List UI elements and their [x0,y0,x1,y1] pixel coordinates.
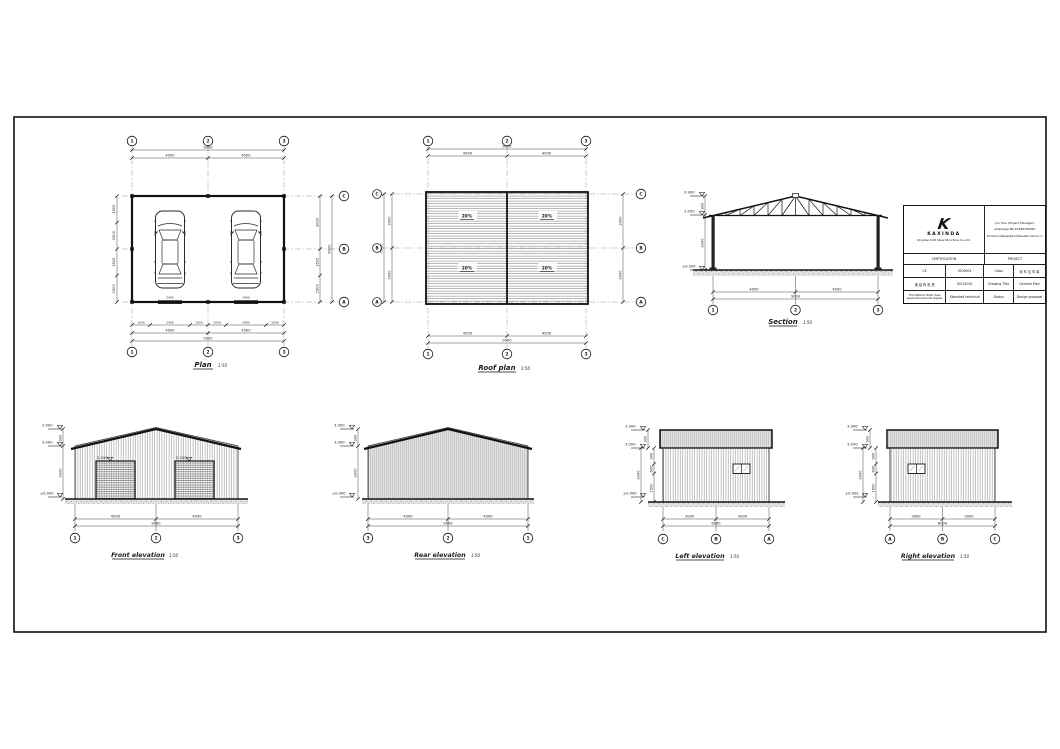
view-title: Section [768,318,797,326]
level-label: ±0.000 [682,265,696,269]
dim-label: 3000 [59,468,63,478]
plan-view: 9000 4500 4500 1500 1500 1500 1500 3000 … [112,136,349,369]
car-icon [154,211,187,288]
level-label: 3.900 [42,424,53,428]
grid-bubble: 2 [505,139,508,145]
grid-bubble: A [639,300,643,306]
front-elevation-view: 2.200 2.200 3.900 3.000 ±0.000 900 3000 … [40,424,248,559]
level-label: 3.900 [334,424,345,428]
dim-label: 4500 [749,287,759,291]
grid-bubble: 1 [426,139,429,145]
grid-bubble: 2 [505,352,508,358]
dim-label: 4500 [542,151,552,155]
level-label: ±0.000 [40,492,54,496]
view-title: Plan [194,361,211,369]
level-label: 3.000 [334,441,345,445]
roof-truss [703,194,888,219]
dim-label: 1500 [650,483,654,493]
level-label: ±0.000 [332,492,346,496]
dim-label: 2400 [242,321,250,325]
title-block-cell: Status [984,291,1014,303]
dim-label: 4500 [832,287,842,291]
title-block-cell: 钢 结 构 资 质 [904,278,946,290]
view-title: Rear elevation [414,551,466,559]
dim-label: 4500 [463,151,473,155]
sheet-drawing: 9000 4500 4500 1500 1500 1500 1500 3000 … [0,0,1060,749]
grid-bubble: C [375,192,378,198]
dim-label: 1050 [213,321,221,325]
grid-bubble: 2 [446,536,449,542]
roof-plan-view: 9000 4500 4500 6000 3000 3000 3000 3000 … [373,136,646,372]
dim-label: 3000 [316,217,320,227]
view-scale: 1:50 [803,320,812,325]
title-block-cell: Design proposal [1014,291,1045,303]
slope-label: 20% [462,214,473,220]
left-elevation-view: 3.900 3.000 ±0.000 900 3000 900 600 1500… [623,425,785,560]
ground-strip [693,270,893,276]
contact-cell: Jon Hao (Project Manager) whatsapp:86-15… [985,206,1045,253]
title-block-cell: ISO14001 [946,278,984,290]
grid-bubble: 1 [130,350,133,356]
dim-label: 1500 [872,483,876,493]
grid-bubble: 2 [794,308,797,314]
dim-label: 1500 [112,230,116,240]
dim-label: 1500 [316,283,320,293]
dim-label: 900 [354,434,358,442]
dim-label: 1500 [316,257,320,267]
grid-bubble: 1 [711,308,714,314]
company-logo: K [937,217,951,231]
grid-bubble: C [639,192,642,198]
dim-label: 1050 [271,321,279,325]
dim-label: 1050 [137,321,145,325]
dim-label: 900 [872,452,876,460]
dim-label: 3000 [911,514,921,518]
level-label: 3.000 [847,443,858,447]
dim-label: 900 [644,435,648,443]
grid-bubble: 1 [130,139,133,145]
dim-label: 4500 [111,514,121,518]
dim-label: 3000 [354,468,358,478]
dim-label: 6000 [328,244,332,254]
dim-label: 4500 [165,328,175,332]
dim-label: 4500 [403,514,413,518]
dim-label: 6000 [938,521,948,525]
grid-bubble: 3 [584,139,587,145]
title-block-cell: General Plan [1014,278,1045,290]
column [712,215,715,270]
dim-label: 4500 [241,153,251,157]
dim-label: 3000 [859,470,863,480]
level-label: 3.000 [684,210,695,214]
grid-bubble: 3 [584,352,587,358]
grid-bubble: 3 [282,350,285,356]
ground-strip [878,502,1012,507]
side-wall [663,448,769,502]
grid-bubble: C [342,194,345,200]
dim-label: 9000 [502,338,512,342]
grid-bubble: C [993,537,996,543]
column [877,215,880,270]
dim-label: 1050 [195,321,203,325]
view-title: Roof plan [478,364,515,372]
dim-label: 1500 [112,257,116,267]
title-block-cell: Standard technical [946,291,984,303]
roof-fascia-band [660,430,772,448]
dim-label: 9000 [203,336,213,340]
window [908,464,925,474]
grid-bubble: 2 [154,536,157,542]
dim-label: 900 [866,435,870,443]
car-icon [230,211,263,288]
dim-label: 3000 [619,216,623,226]
roof-fascia-band [887,430,998,448]
section-view: 3.900 3.000 ±0.000 900 3000 4500 4500 90… [682,191,893,326]
ground-strip [362,499,534,504]
level-label: 3.900 [847,425,858,429]
grid-bubble: 2 [206,350,209,356]
right-elevation-view: 3.900 3.000 ±0.000 900 3000 900 600 1500… [845,425,1012,560]
company-subtitle: Qingdao KXD Steel Structure Co.,Ltd. [917,238,971,242]
door-opening [158,300,182,304]
dim-label: 4500 [542,331,552,335]
roller-door [175,461,214,499]
level-label: 3.900 [684,191,695,195]
dim-label: 3000 [738,514,748,518]
grid-bubble: 2 [206,139,209,145]
grid-bubble: 1 [426,352,429,358]
grid-bubble: 3 [282,139,285,145]
dim-label: 600 [872,465,876,473]
door-tag: 2400 [166,296,174,300]
dim-label: 4500 [165,153,175,157]
title-block-cell: Drawing Title [984,278,1014,290]
view-scale: 1:50 [169,553,178,558]
dim-label: 3000 [701,238,705,248]
level-label: 3.900 [625,425,636,429]
dim-label: 9000 [443,521,453,525]
dim-label: 2400 [166,321,174,325]
door-level-label: 2.200 [97,456,108,460]
slope-label: 20% [542,214,553,220]
dim-label: 3000 [685,514,695,518]
roller-door [96,461,135,499]
rear-elevation-view: 3.900 3.000 ±0.000 900 3000 4500 4500 90… [332,424,534,559]
title-block-cell: CE [904,265,946,277]
dim-label: 4500 [241,328,251,332]
dim-label: 9000 [791,294,801,298]
grid-bubble: A [767,537,771,543]
title-block-cell: ISO9001 [946,265,984,277]
view-scale: 1:50 [471,553,480,558]
view-scale: 1:50 [521,366,530,371]
material-note-line: special structure life register [907,297,943,300]
door-level-label: 2.200 [176,456,187,460]
level-label: 3.000 [625,443,636,447]
level-label: 3.000 [42,441,53,445]
title-block-cell: The Material: Metal Class special struct… [904,291,946,303]
slope-label: 20% [462,266,473,272]
company-cell: K KAXINDA Qingdao KXD Steel Structure Co… [904,206,985,253]
grid-bubble: A [888,537,892,543]
dim-label: 4500 [192,514,202,518]
dim-label: 3000 [637,470,641,480]
slope-label: 20% [542,266,553,272]
ground-strip [65,499,248,504]
view-title: Left elevation [675,552,725,560]
grid-bubble: C [661,537,664,543]
plan-building-outline [132,196,284,302]
grid-bubble: 3 [366,536,369,542]
window [733,464,750,474]
level-label: ±0.000 [845,492,859,496]
grid-bubble: 1 [73,536,76,542]
rear-wall [368,428,528,500]
dim-label: 6000 [711,521,721,525]
side-wall [890,448,995,502]
certification-header: CERTIFICATION [904,254,985,264]
dim-label: 3000 [388,216,392,226]
view-title: Front elevation [111,551,165,559]
level-label: ±0.000 [623,492,637,496]
door-tag: 2400 [242,296,250,300]
dim-label: 4500 [463,331,473,335]
dim-label: 9000 [151,521,161,525]
view-scale: 1:50 [218,363,227,368]
title-block-cell: Class [984,265,1014,277]
dim-label: 1500 [112,283,116,293]
title-block-cell: 双 车 位 车 库 [1014,265,1045,277]
title-block: K KAXINDA Qingdao KXD Steel Structure Co… [903,205,1046,304]
dim-label: 600 [650,465,654,473]
project-header: PROJECT [985,254,1045,264]
grid-bubble: A [342,300,346,306]
view-scale: 1:50 [960,554,969,559]
grid-bubble: A [375,300,379,306]
grid-bubble: 3 [236,536,239,542]
dim-label: 900 [650,452,654,460]
dim-label: 900 [59,434,63,442]
ground-strip [648,502,785,507]
dim-label: 3000 [388,270,392,280]
drawing-sheet: 9000 4500 4500 1500 1500 1500 1500 3000 … [0,0,1060,749]
dim-label: 3000 [964,514,974,518]
grid-bubble: 1 [526,536,529,542]
view-scale: 1:50 [730,554,739,559]
grid-bubble: 3 [876,308,879,314]
dim-label: 3000 [619,270,623,280]
dim-label: 900 [701,202,705,210]
door-opening [234,300,258,304]
dim-label: 4500 [483,514,493,518]
view-title: Right elevation [901,552,956,560]
contact-line: Email:kxdsteel@kxdsteelstructure.cn [987,233,1043,239]
dim-label: 1500 [112,204,116,214]
